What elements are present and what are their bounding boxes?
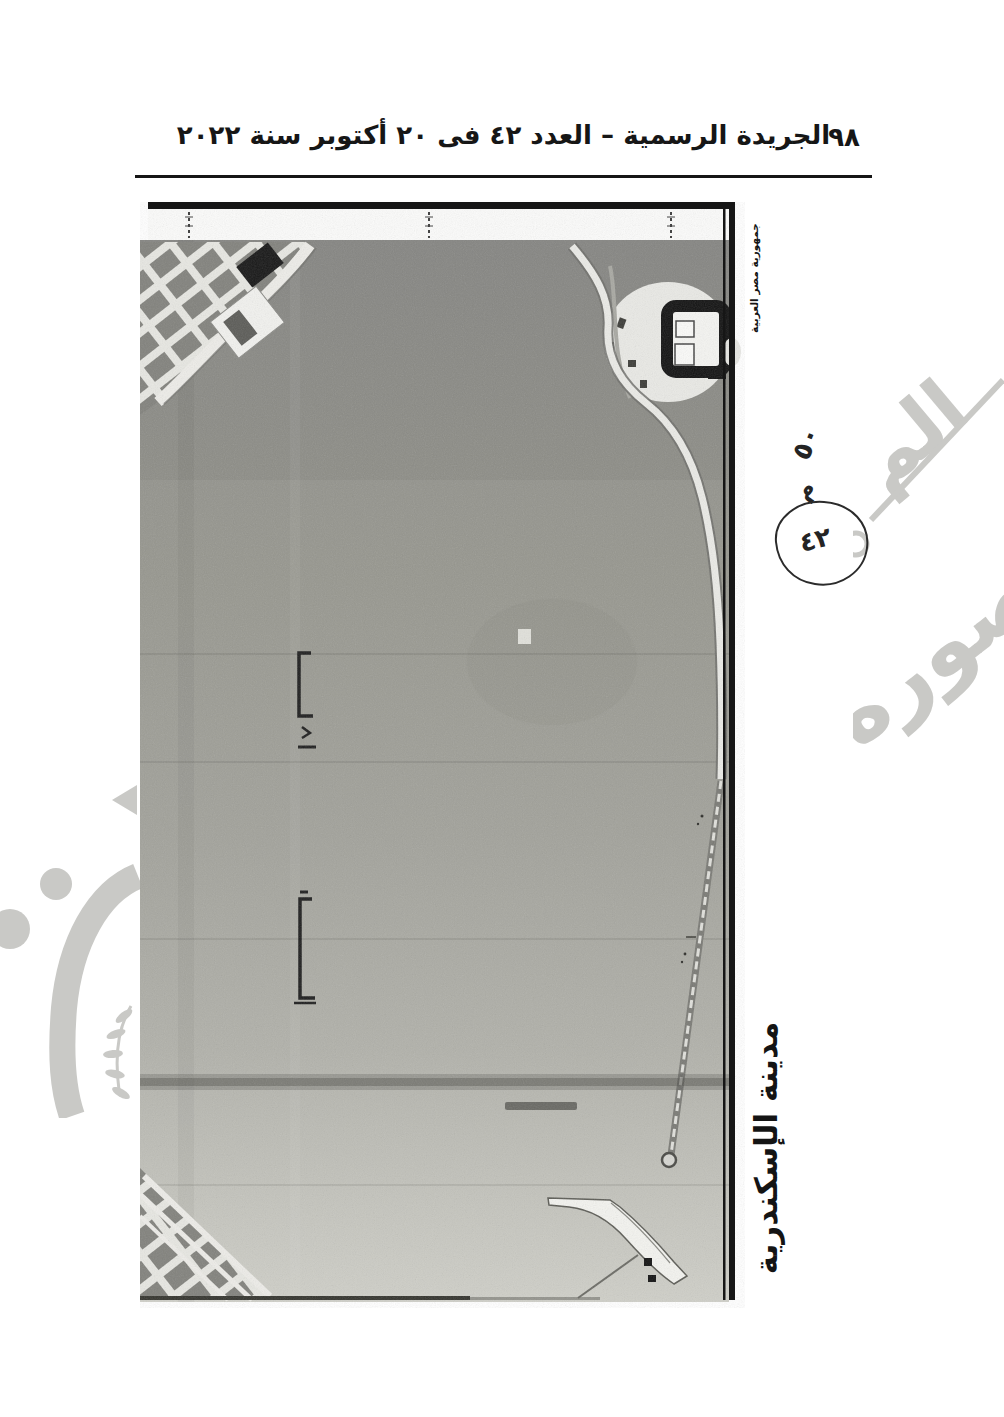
page-number: ٩٨ bbox=[828, 122, 860, 152]
map-top-margin bbox=[148, 208, 729, 240]
annotation-circled-number: ٤٢ bbox=[796, 521, 834, 558]
scan-grain bbox=[140, 240, 729, 1302]
watermark-laurel-branch bbox=[103, 1006, 135, 1101]
page-title: الجريدة الرسمية – العدد ٤٢ فى ٢٠ أكتوبر … bbox=[135, 120, 872, 150]
map-scan bbox=[140, 202, 745, 1308]
annotation-note-unit: م bbox=[788, 475, 821, 505]
watermark-triangle bbox=[112, 785, 137, 815]
handwritten-annotation: ٥٠ م ٤٢ bbox=[760, 400, 880, 595]
country-label: جمهورية مصر العربية bbox=[744, 203, 764, 353]
map-figure bbox=[140, 202, 745, 1308]
watermark-arc bbox=[62, 876, 138, 1116]
annotation-note-value: ٥٠ bbox=[785, 422, 826, 464]
watermark-dot bbox=[0, 909, 30, 949]
gazette-header: الجريدة الرسمية – العدد ٤٢ فى ٢٠ أكتوبر … bbox=[135, 120, 872, 168]
gazette-page: الجريدة الرسمية – العدد ٤٢ فى ٢٠ أكتوبر … bbox=[0, 0, 1004, 1417]
watermark-dot bbox=[40, 868, 72, 900]
city-label: مدينة الإسكندرية bbox=[738, 1025, 794, 1271]
watermark-left bbox=[0, 758, 145, 1118]
header-divider bbox=[135, 175, 872, 178]
